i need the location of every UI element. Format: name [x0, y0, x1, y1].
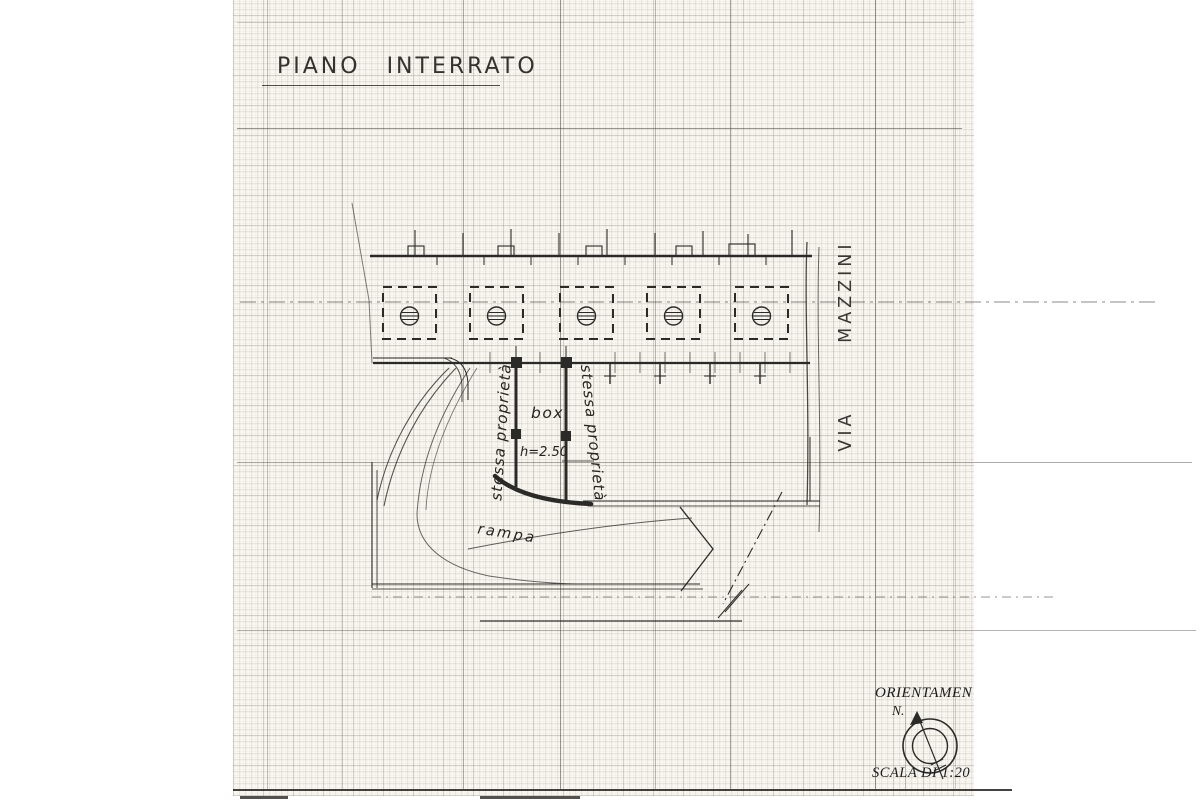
orientation-title-clip: ORIENTAMEN [875, 682, 972, 703]
north-label: N. [892, 703, 904, 719]
page-title: PIANO INTERRATO [277, 54, 538, 79]
grid-line [267, 0, 268, 790]
grid-line [955, 0, 956, 790]
grid-line [233, 789, 1012, 791]
grid-line [237, 462, 1192, 463]
grid-line [237, 128, 962, 129]
grid-line [560, 0, 561, 790]
grid-line [237, 630, 1196, 631]
scale-label: SCALA DI 1:20 [872, 765, 970, 781]
grid-line [905, 0, 906, 790]
grid-line [480, 796, 580, 799]
graph-paper-sheet [233, 0, 974, 796]
grid-line [342, 0, 343, 790]
box-height-label: h=2.50 [520, 445, 568, 460]
grid-line [730, 0, 731, 790]
street-label: VIA MAZZINI [836, 240, 856, 451]
scanned-floor-plan-page: { "title": { "text": "PIANO INTERRATO" }… [0, 0, 1200, 800]
grid-line [463, 0, 464, 790]
grid-line [875, 0, 876, 790]
grid-line [237, 22, 965, 23]
grid-line [655, 0, 656, 790]
scale-label-clip: SCALA DI 1:20 [872, 762, 972, 783]
box-label: box [531, 404, 564, 422]
grid-line [240, 796, 288, 799]
orientation-title: ORIENTAMEN [875, 685, 972, 701]
title-underline [262, 85, 500, 86]
